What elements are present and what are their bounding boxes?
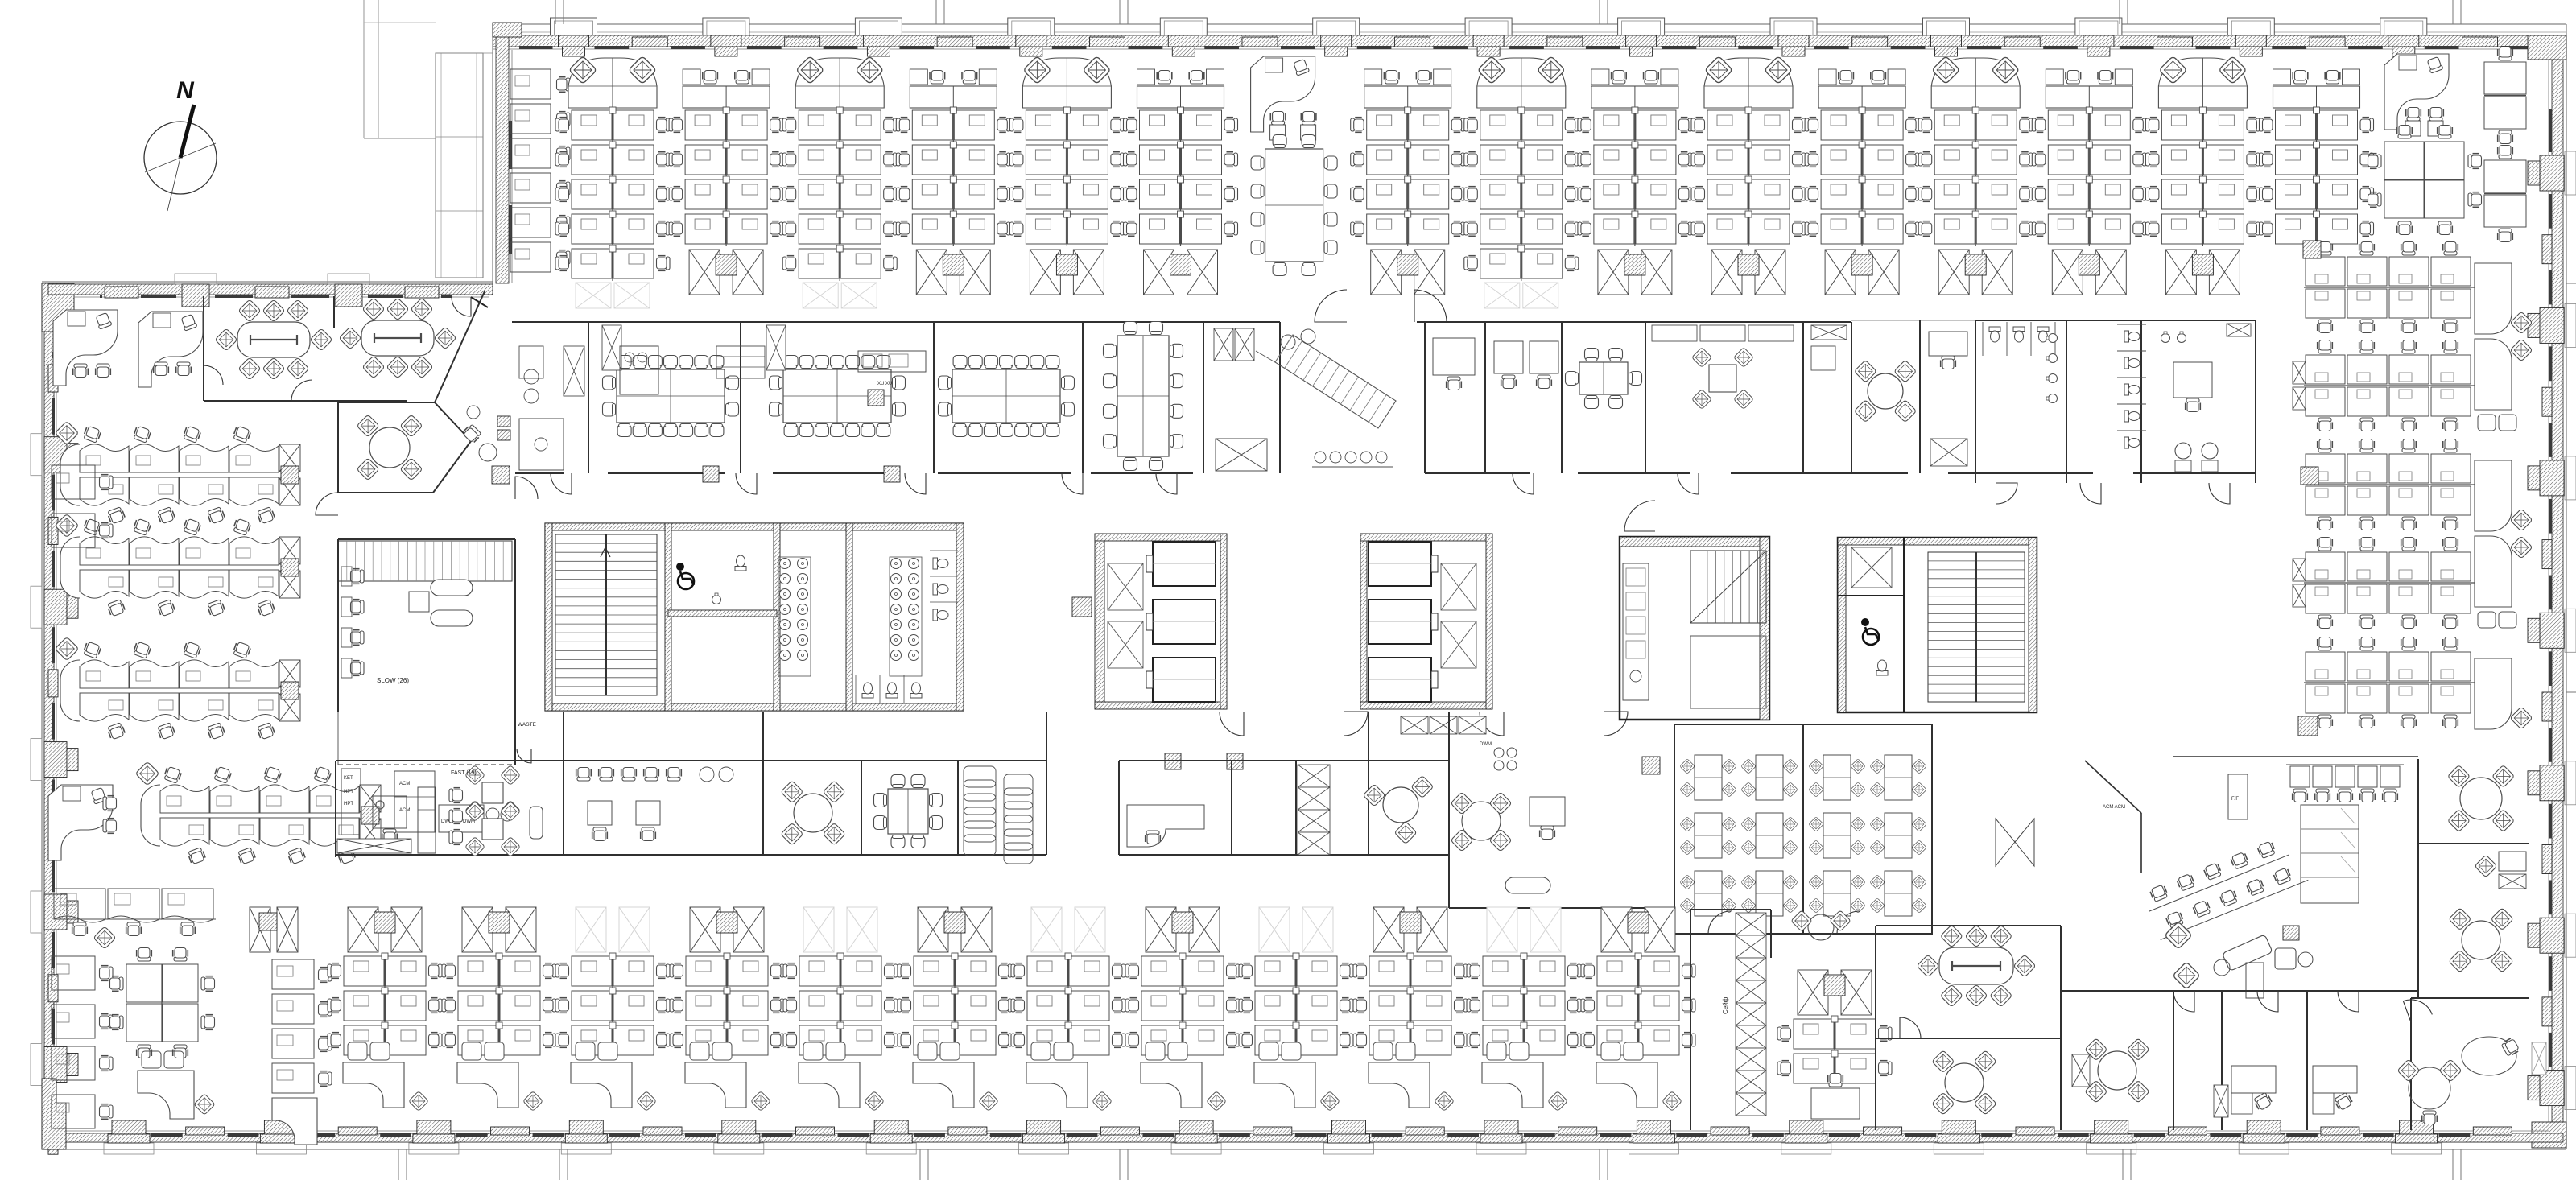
svg-text:ACM: ACM	[399, 808, 410, 813]
svg-text:HPT: HPT	[344, 802, 353, 807]
svg-text:DWM: DWM	[463, 819, 475, 824]
svg-text:ACM ACM: ACM ACM	[2103, 805, 2125, 810]
svg-text:SLOW (26): SLOW (26)	[377, 677, 409, 684]
svg-text:KET: KET	[344, 776, 353, 781]
svg-text:FAST (19): FAST (19)	[451, 770, 477, 776]
svg-text:Сейф: Сейф	[1722, 996, 1729, 1014]
svg-text:ACM: ACM	[399, 782, 410, 786]
svg-text:N: N	[176, 77, 195, 104]
svg-text:WASTE: WASTE	[518, 722, 537, 728]
svg-text:XU XU: XU XU	[877, 382, 892, 386]
svg-text:F/F: F/F	[2231, 797, 2239, 802]
svg-text:DWM: DWM	[1480, 742, 1492, 747]
